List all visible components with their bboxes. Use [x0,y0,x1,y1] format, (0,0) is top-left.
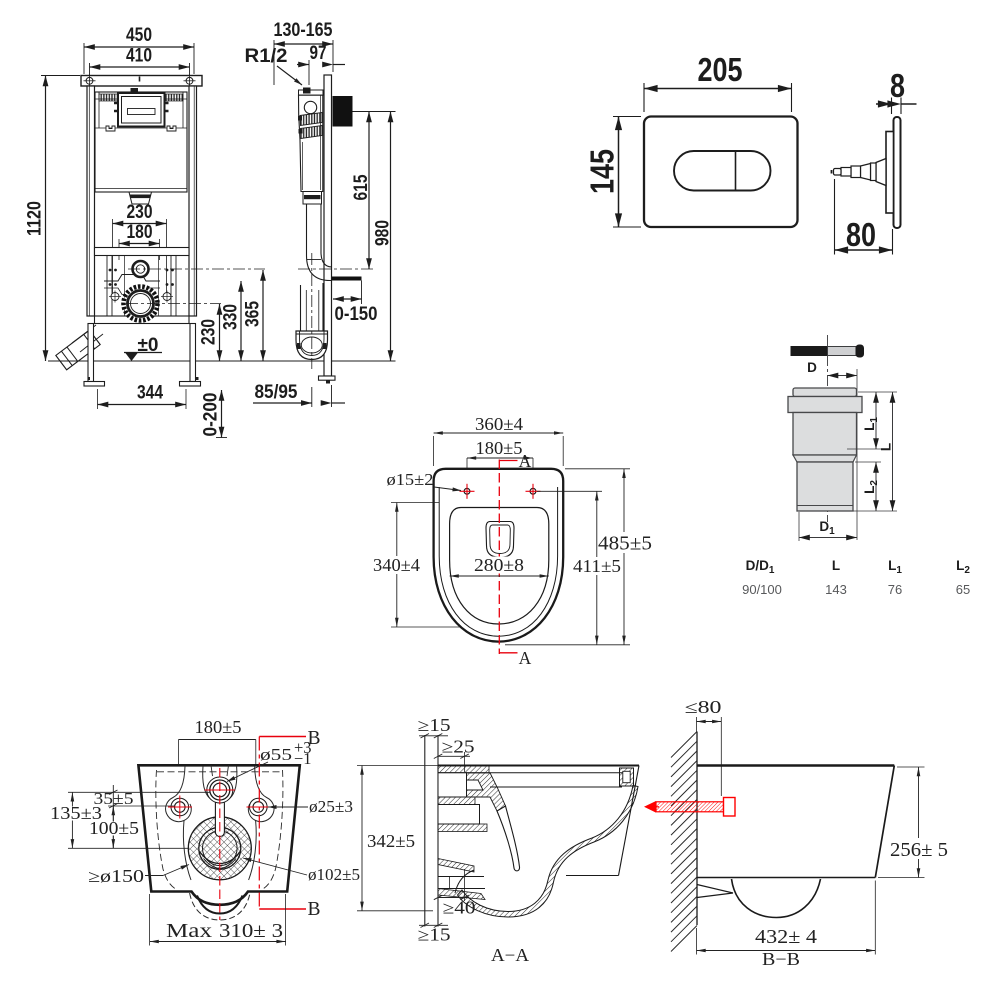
svg-text:−1: −1 [294,749,312,768]
svg-text:360±4: 360±4 [475,414,523,434]
svg-text:L: L [879,443,894,451]
svg-text:65: 65 [956,582,970,597]
svg-text:≥ø150: ≥ø150 [88,866,144,886]
svg-text:230: 230 [198,319,220,345]
svg-text:B−B: B−B [762,949,800,969]
svg-text:ø102±5: ø102±5 [308,865,360,884]
svg-text:340±4: 340±4 [373,555,420,575]
svg-text:≤80: ≤80 [685,697,722,717]
svg-text:450: 450 [126,24,152,46]
svg-text:85/95: 85/95 [255,381,298,403]
svg-text:256± 5: 256± 5 [890,840,948,861]
svg-text:76: 76 [888,582,902,597]
svg-text:180: 180 [127,221,153,243]
svg-text:D: D [807,360,817,375]
svg-text:A: A [519,648,532,668]
svg-text:0-150: 0-150 [335,303,378,325]
svg-text:ø15±2: ø15±2 [387,470,434,489]
svg-text:143: 143 [825,582,847,597]
svg-text:180±5: 180±5 [195,717,242,737]
svg-text:R1/2: R1/2 [245,45,288,67]
svg-text:230: 230 [127,201,153,223]
svg-text:330: 330 [220,304,242,330]
svg-text:145: 145 [584,149,621,194]
svg-text:ø55: ø55 [260,745,292,764]
svg-text:≥15: ≥15 [418,715,451,735]
svg-text:410: 410 [126,45,152,67]
svg-text:Max: Max [166,921,212,942]
svg-text:432± 4: 432± 4 [755,927,817,948]
svg-text:A−A: A−A [491,945,529,965]
svg-text:≥40: ≥40 [443,898,476,918]
svg-text:485±5: 485±5 [598,534,652,555]
svg-text:344: 344 [137,382,163,404]
svg-text:130-165: 130-165 [274,19,333,41]
svg-text:280±8: 280±8 [474,555,524,575]
svg-text:205: 205 [698,51,743,88]
svg-text:80: 80 [846,216,876,253]
svg-text:90/100: 90/100 [742,582,782,597]
svg-text:0-200: 0-200 [200,392,222,436]
svg-text:1120: 1120 [24,201,46,236]
svg-text:342±5: 342±5 [367,831,415,851]
svg-text:365: 365 [242,301,264,327]
svg-text:411±5: 411±5 [573,556,621,576]
svg-text:≥15: ≥15 [418,925,451,945]
svg-text:8: 8 [890,67,905,104]
svg-text:97: 97 [310,42,327,64]
svg-text:310± 3: 310± 3 [219,921,283,942]
svg-text:100±5: 100±5 [89,818,139,838]
svg-text:ø25±3: ø25±3 [309,797,353,816]
svg-text:L: L [832,558,840,573]
svg-text:B: B [307,899,320,920]
svg-text:≥25: ≥25 [442,737,475,757]
svg-text:180±5: 180±5 [476,438,523,458]
